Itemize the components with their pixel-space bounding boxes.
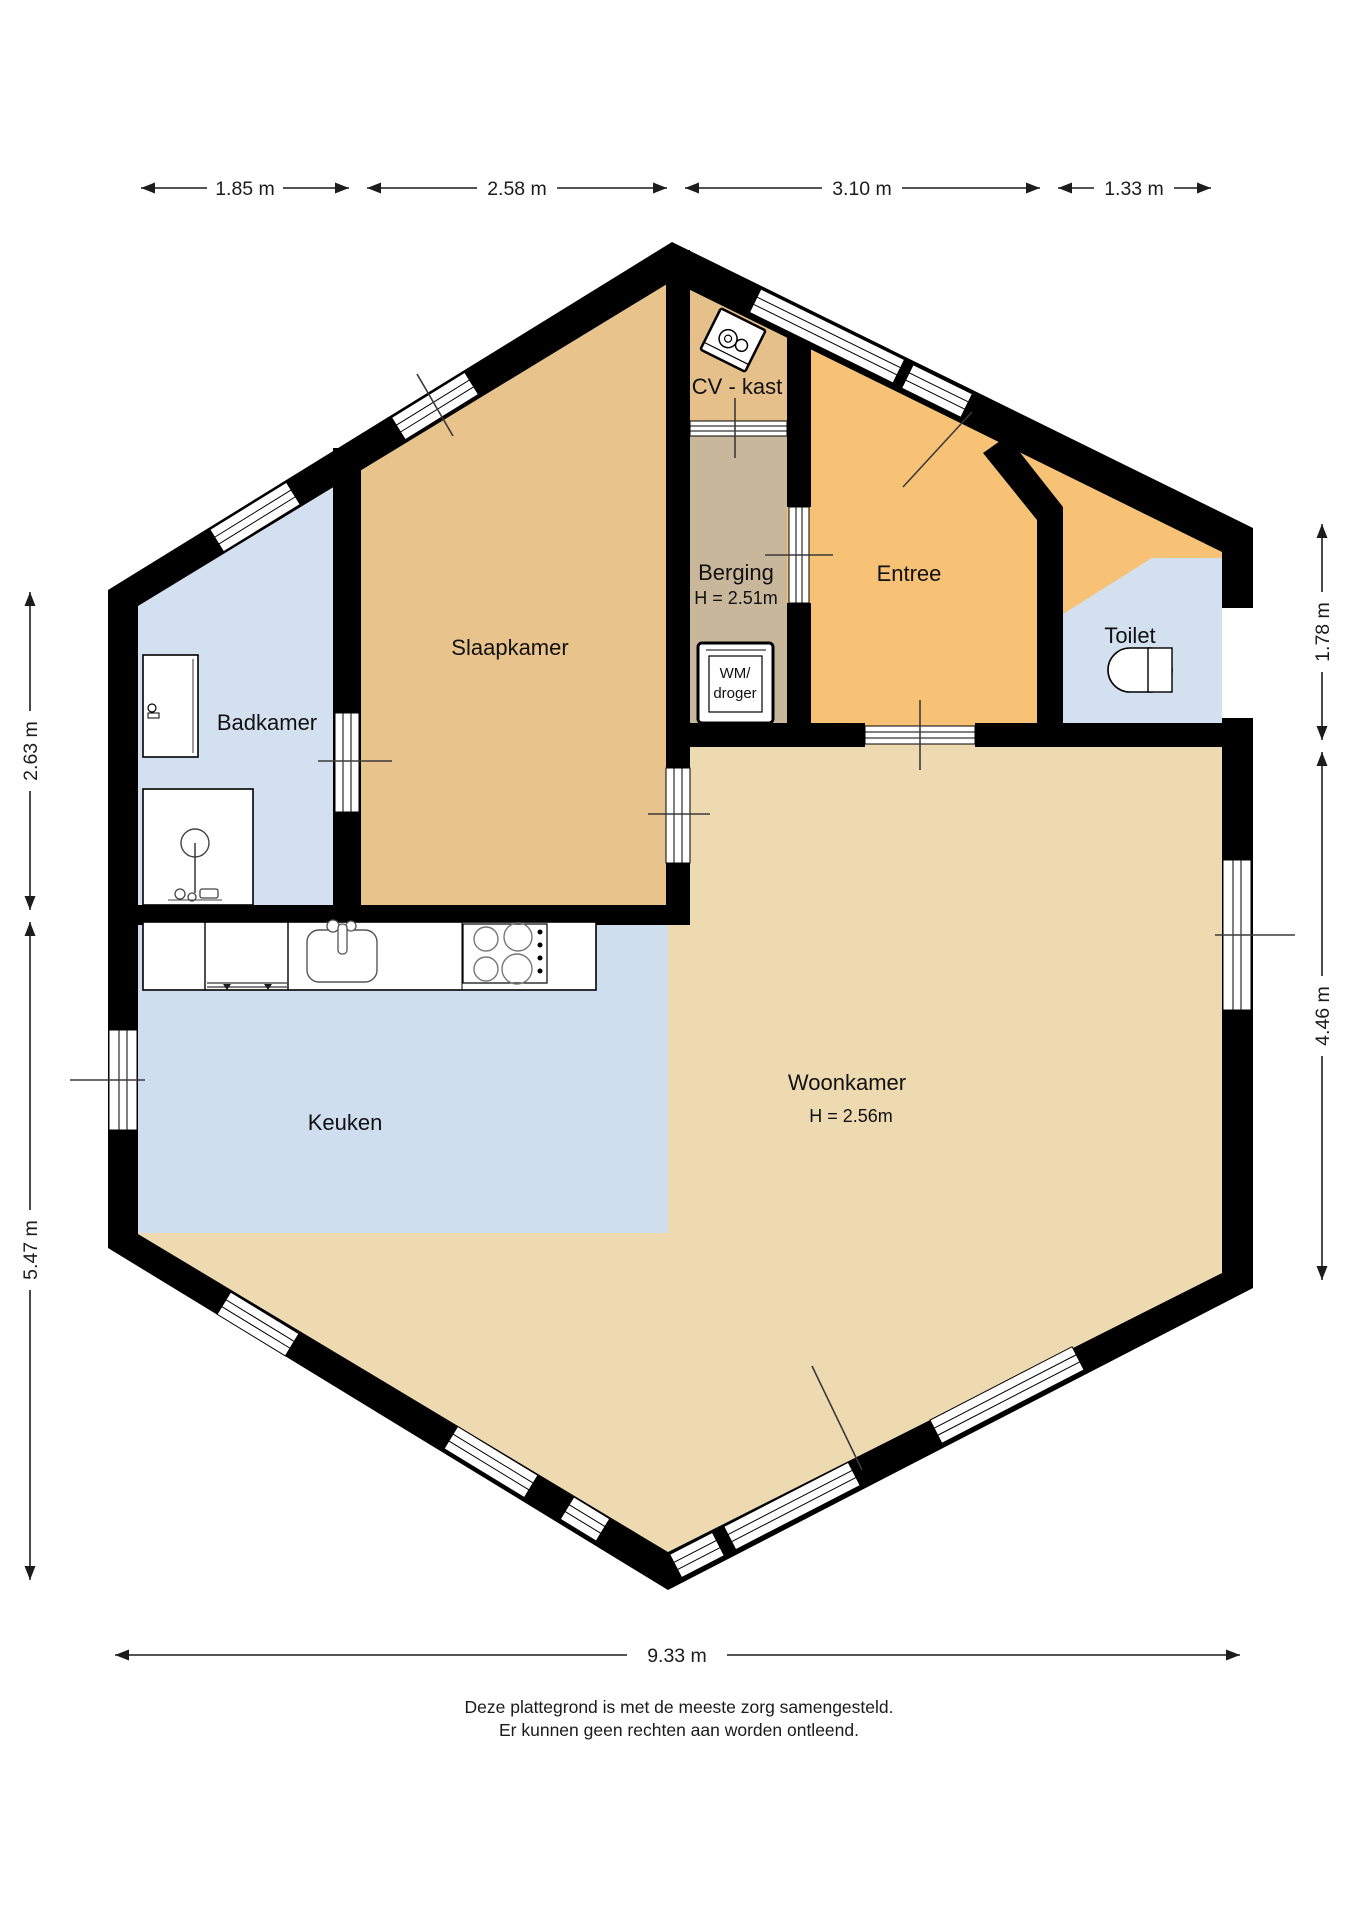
room-label-woonkamer: Woonkamer (788, 1070, 906, 1095)
dimension-left-1: 2.63 m (20, 592, 42, 910)
dimension-right-1: 1.78 m (1312, 524, 1334, 740)
door-toilet (1222, 608, 1253, 718)
room-label-berging: Berging (698, 560, 774, 585)
washer-dryer-box: WM/ droger (698, 643, 773, 723)
room-note-berging-height: H = 2.51m (694, 588, 778, 608)
room-label-cv-kast: CV - kast (692, 374, 782, 399)
room-label-toilet: Toilet (1104, 623, 1155, 648)
svg-text:2.58 m: 2.58 m (487, 178, 547, 200)
room-label-slaapkamer: Slaapkamer (451, 635, 568, 660)
svg-text:9.33 m: 9.33 m (647, 1645, 707, 1667)
floor-plan-page: WM/ droger (0, 0, 1358, 1920)
washer-dryer-label-1: WM/ (720, 665, 752, 682)
washer-dryer-label-2: droger (713, 685, 756, 702)
svg-text:2.63 m: 2.63 m (20, 721, 42, 781)
dimension-bottom-1: 9.33 m (115, 1645, 1240, 1667)
footer-line-2: Er kunnen geen rechten aan worden ontlee… (499, 1720, 859, 1740)
room-label-keuken: Keuken (308, 1110, 383, 1135)
room-label-badkamer: Badkamer (217, 710, 317, 735)
dimension-right-2: 4.46 m (1312, 752, 1334, 1280)
svg-text:1.78 m: 1.78 m (1312, 602, 1334, 662)
dimension-top-1: 1.85 m (141, 178, 349, 200)
svg-text:4.46 m: 4.46 m (1312, 986, 1334, 1046)
dimension-top-3: 3.10 m (685, 178, 1040, 200)
svg-text:1.33 m: 1.33 m (1104, 178, 1164, 200)
door-badkamer-slaapkamer (335, 713, 359, 812)
toilet-fixture-icon (1108, 648, 1172, 692)
footer-line-1: Deze plattegrond is met de meeste zorg s… (465, 1697, 894, 1717)
kitchen-counter (143, 920, 596, 990)
dimension-top-4: 1.33 m (1058, 178, 1211, 200)
door-slaapkamer-woonkamer (666, 768, 690, 863)
dimension-left-2: 5.47 m (20, 922, 42, 1580)
dimension-top-2: 2.58 m (367, 178, 667, 200)
wall-toilet-woonkamer-right (975, 723, 1222, 747)
shower-icon (143, 789, 253, 905)
svg-text:1.85 m: 1.85 m (215, 178, 275, 200)
bathroom-cabinet-icon (143, 655, 198, 757)
footer-disclaimer: Deze plattegrond is met de meeste zorg s… (465, 1697, 894, 1740)
wall-badkamer-slaapkamer (333, 448, 361, 922)
wall-entree-woonkamer-left (668, 723, 865, 747)
wall-slaapkamer-berging-upper (666, 250, 690, 768)
room-label-entree: Entree (877, 561, 942, 586)
svg-text:5.47 m: 5.47 m (20, 1220, 42, 1280)
wall-berging-entree-lower (787, 603, 811, 723)
wall-berging-entree-upper (787, 336, 811, 507)
room-note-woonkamer-height: H = 2.56m (809, 1106, 893, 1126)
door-cv-berging (690, 421, 787, 436)
floor-plan-svg: WM/ droger (0, 0, 1358, 1920)
svg-text:3.10 m: 3.10 m (832, 178, 892, 200)
